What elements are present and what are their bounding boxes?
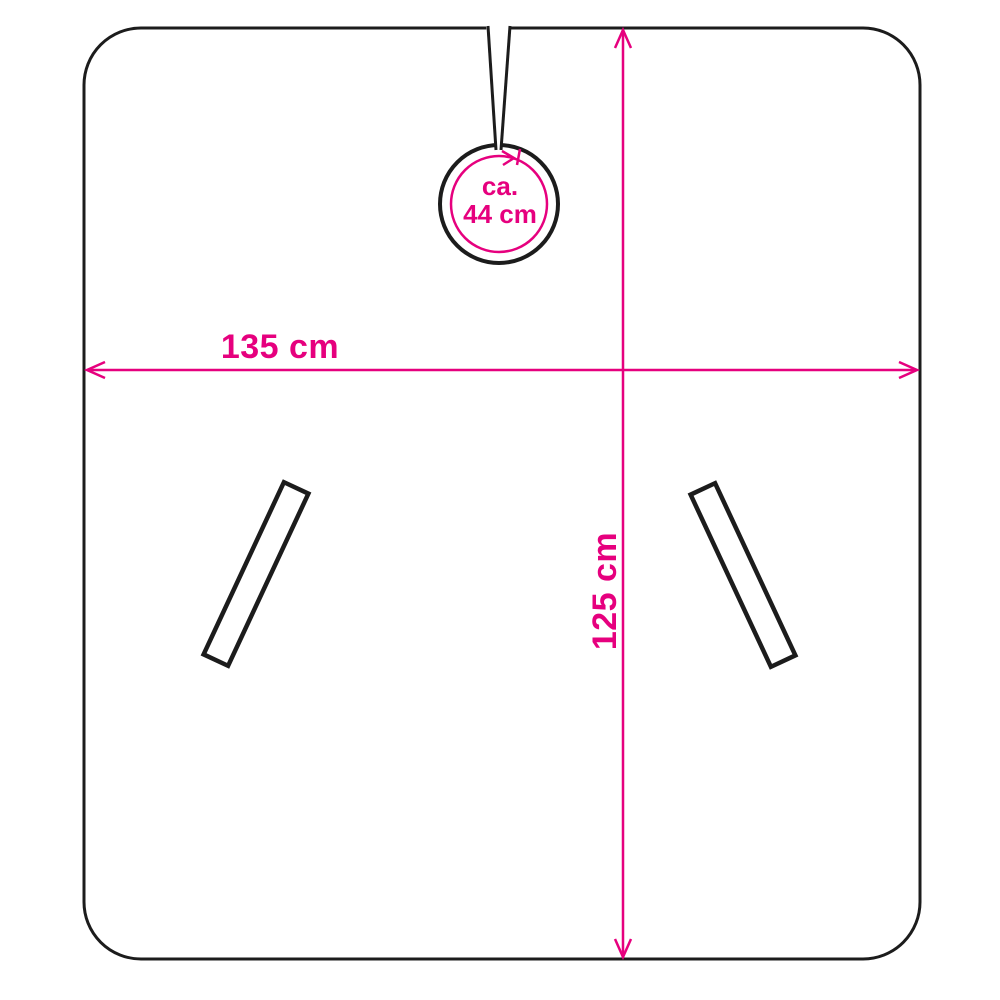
width-dimension-label: 135 cm: [160, 328, 400, 367]
neck-label-prefix: ca.: [430, 172, 570, 200]
neck-label-value: 44 cm: [430, 200, 570, 228]
height-dimension-label: 125 cm: [586, 511, 624, 671]
cape-dimension-diagram: 135 cm 125 cm ca. 44 cm: [0, 0, 1000, 1000]
diagram-canvas: [0, 0, 1000, 1000]
neck-circumference-label: ca. 44 cm: [430, 172, 570, 228]
